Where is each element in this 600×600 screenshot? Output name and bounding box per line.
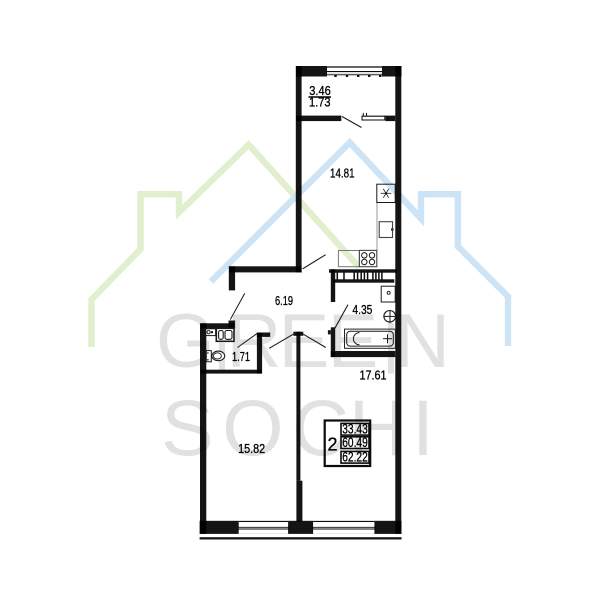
svg-text:4.35: 4.35: [352, 302, 372, 317]
svg-text:62.22: 62.22: [342, 450, 368, 465]
svg-text:O: O: [222, 383, 283, 472]
svg-text:60.49: 60.49: [342, 435, 368, 450]
svg-text:6.19: 6.19: [275, 293, 293, 308]
svg-text:1.71: 1.71: [232, 349, 250, 364]
svg-text:2: 2: [327, 435, 337, 455]
svg-text:15.82: 15.82: [238, 441, 265, 456]
svg-text:E: E: [279, 299, 330, 384]
svg-text:1.73: 1.73: [309, 95, 331, 110]
svg-text:N: N: [395, 299, 450, 384]
svg-text:I: I: [412, 383, 434, 472]
svg-text:17.61: 17.61: [360, 367, 387, 382]
svg-text:14.81: 14.81: [330, 165, 355, 180]
